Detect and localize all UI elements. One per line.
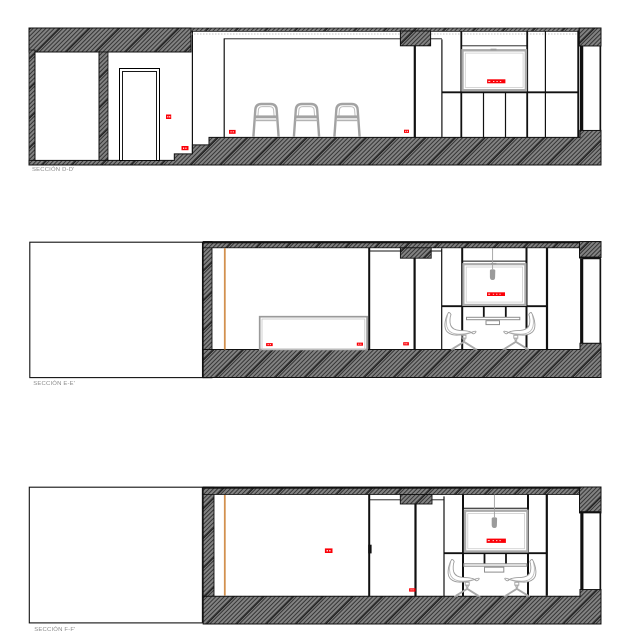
svg-text:SECCIÓN F-F': SECCIÓN F-F' (34, 626, 75, 633)
svg-text:SECCIÓN E-E': SECCIÓN E-E' (33, 380, 75, 387)
svg-text:SECCIÓN D-D': SECCIÓN D-D' (32, 166, 74, 173)
